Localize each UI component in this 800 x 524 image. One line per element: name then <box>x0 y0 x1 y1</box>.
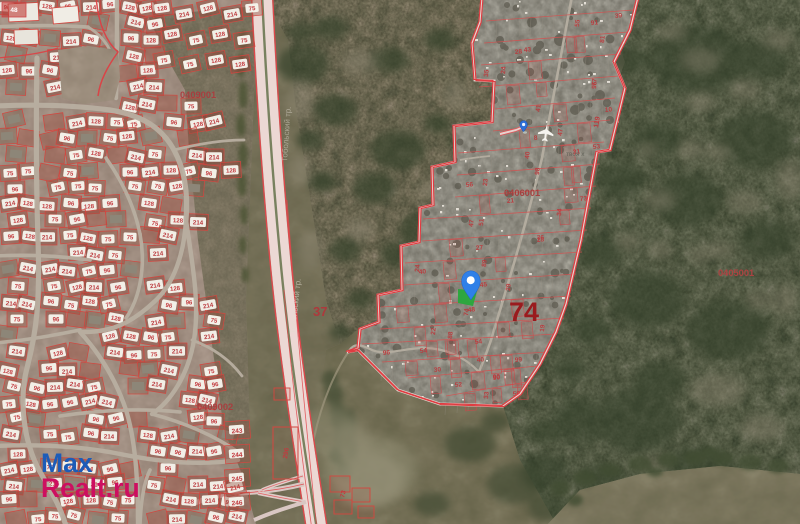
svg-text:10: 10 <box>605 106 613 114</box>
svg-text:47: 47 <box>557 128 565 136</box>
svg-text:48: 48 <box>10 7 18 14</box>
svg-text:43: 43 <box>524 46 532 54</box>
svg-text:45: 45 <box>480 281 488 289</box>
svg-text:30: 30 <box>434 366 442 374</box>
svg-text:24: 24 <box>500 66 508 74</box>
svg-text:37: 37 <box>313 304 327 319</box>
svg-text:74: 74 <box>509 297 539 327</box>
svg-text:22: 22 <box>430 327 438 335</box>
svg-text:40: 40 <box>477 356 485 364</box>
svg-text:245: 245 <box>231 476 243 484</box>
svg-text:53: 53 <box>593 143 601 151</box>
svg-text:52: 52 <box>455 381 463 389</box>
svg-text:0406001: 0406001 <box>504 188 540 198</box>
svg-text:99: 99 <box>515 356 523 364</box>
svg-text:39: 39 <box>615 12 623 20</box>
svg-text:0409001: 0409001 <box>180 90 216 100</box>
svg-text:23: 23 <box>482 178 490 186</box>
svg-text:56: 56 <box>466 181 474 189</box>
svg-text:90: 90 <box>493 373 501 381</box>
svg-text:47: 47 <box>468 219 476 227</box>
svg-text:244: 244 <box>231 452 243 460</box>
svg-text:41: 41 <box>535 104 543 112</box>
svg-text:твоя х: твоя х <box>566 151 585 158</box>
svg-text:35: 35 <box>483 69 491 77</box>
svg-text:28: 28 <box>515 48 523 56</box>
svg-text:29: 29 <box>505 283 513 291</box>
svg-text:96: 96 <box>591 81 599 89</box>
svg-text:89: 89 <box>481 259 489 267</box>
svg-text:96: 96 <box>383 349 391 357</box>
svg-text:246: 246 <box>231 500 243 508</box>
svg-text:0405001: 0405001 <box>718 268 754 278</box>
svg-text:Realt.ru: Realt.ru <box>41 473 140 503</box>
svg-text:243: 243 <box>231 428 243 436</box>
svg-text:33: 33 <box>483 391 491 399</box>
svg-text:48: 48 <box>468 306 476 314</box>
svg-text:27: 27 <box>476 244 484 252</box>
svg-text:91: 91 <box>591 19 599 27</box>
svg-text:81: 81 <box>599 35 607 43</box>
svg-text:98: 98 <box>534 167 542 175</box>
svg-text:40: 40 <box>524 151 532 159</box>
svg-text:24: 24 <box>414 264 422 272</box>
svg-text:0409002: 0409002 <box>197 402 233 412</box>
svg-text:88: 88 <box>447 331 455 339</box>
svg-text:55: 55 <box>574 19 582 27</box>
svg-text:76: 76 <box>537 234 545 242</box>
svg-text:21: 21 <box>507 197 515 205</box>
svg-text:51: 51 <box>478 218 486 226</box>
svg-text:19: 19 <box>539 324 547 332</box>
